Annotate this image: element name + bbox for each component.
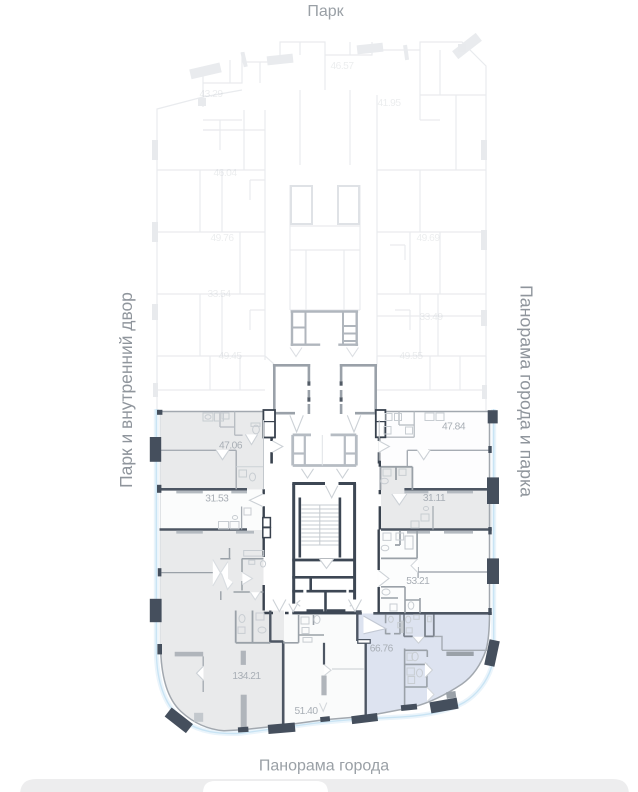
svg-text:49.45: 49.45	[219, 351, 243, 362]
svg-text:51.40: 51.40	[295, 706, 319, 717]
svg-text:Парк: Парк	[307, 3, 344, 20]
svg-text:33.49: 33.49	[420, 312, 444, 323]
svg-text:Панорама города: Панорама города	[259, 758, 389, 775]
svg-text:31.11: 31.11	[423, 493, 446, 504]
svg-text:47.84: 47.84	[442, 422, 466, 433]
svg-text:47.06: 47.06	[219, 440, 243, 451]
svg-text:134.21: 134.21	[232, 671, 261, 682]
svg-text:33.54: 33.54	[208, 289, 232, 300]
svg-text:31.53: 31.53	[205, 494, 229, 505]
svg-text:46.04: 46.04	[214, 168, 238, 179]
svg-text:43.29: 43.29	[200, 89, 224, 100]
svg-text:Панорама города и парка: Панорама города и парка	[517, 285, 537, 497]
svg-text:49.69: 49.69	[417, 233, 441, 244]
svg-text:49.76: 49.76	[211, 233, 235, 244]
svg-text:41.95: 41.95	[378, 98, 402, 109]
svg-text:66.76: 66.76	[370, 643, 394, 654]
svg-text:46.57: 46.57	[331, 61, 355, 72]
svg-text:49.55: 49.55	[400, 351, 424, 362]
svg-text:Парк и внутренний двор: Парк и внутренний двор	[116, 292, 136, 488]
svg-text:53.21: 53.21	[406, 576, 430, 587]
